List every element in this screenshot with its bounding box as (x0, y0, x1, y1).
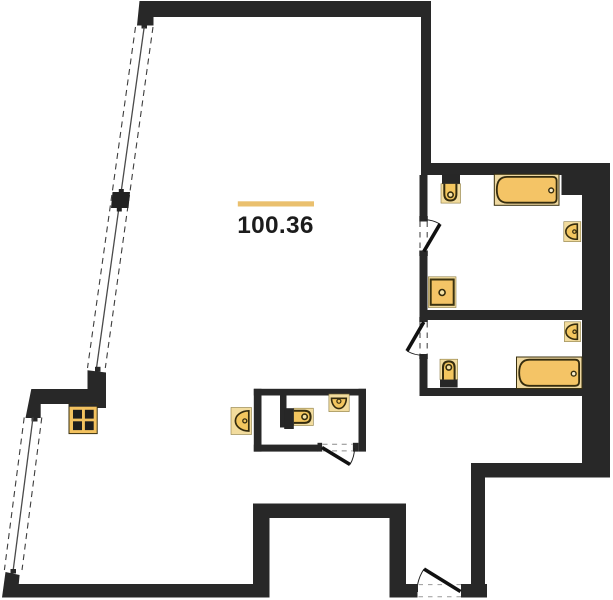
svg-text:100.36: 100.36 (237, 212, 313, 239)
